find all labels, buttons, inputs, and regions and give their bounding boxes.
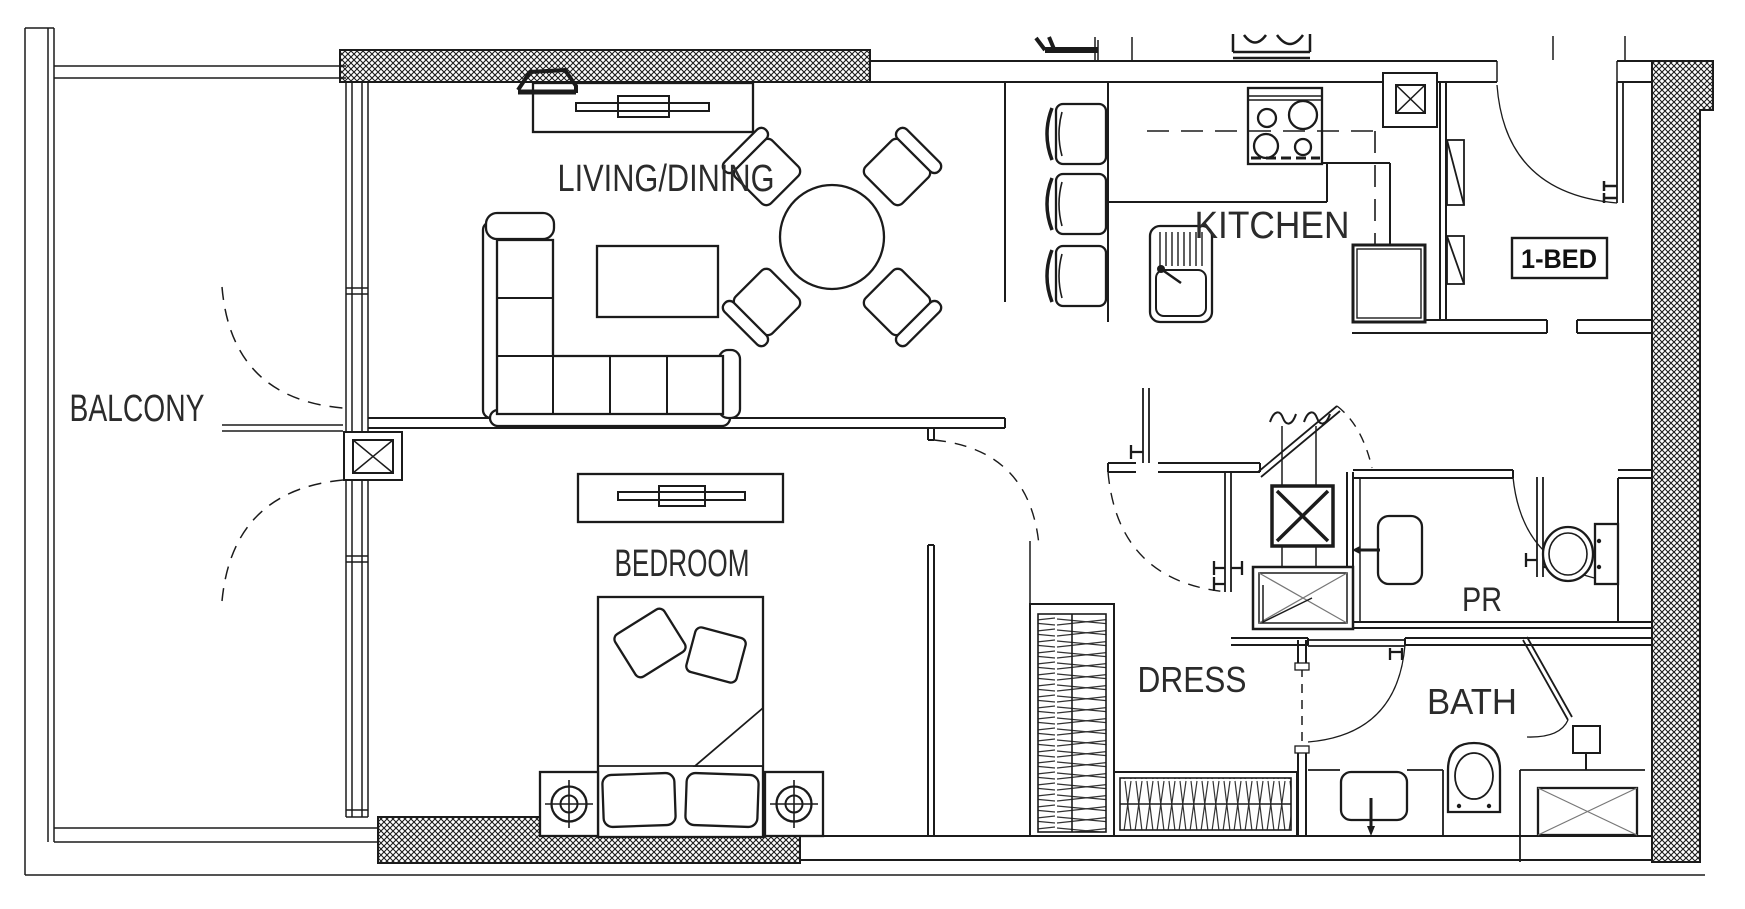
shower-screen: [1523, 637, 1572, 737]
shower: [1538, 726, 1637, 835]
shower-head-icon: [1573, 726, 1600, 753]
dresser-tv-bedroom: [578, 474, 783, 522]
bar-stools: [1047, 104, 1106, 306]
cooktop-4-burner: [1248, 88, 1322, 164]
dining-chair: [720, 264, 805, 349]
room-label-bedroom: BEDROOM: [615, 543, 750, 585]
bar-stool: [1047, 104, 1106, 164]
wall-pr-top: [1353, 470, 1652, 478]
wall-right-hatched: [1652, 61, 1713, 862]
wall-pr-bottom: [1347, 622, 1652, 628]
cooktop-fragment-icon: [1233, 34, 1310, 58]
washing-machine: [1253, 567, 1353, 629]
room-label-living-dining: LIVING/DINING: [558, 158, 775, 200]
wall-bath-top: [1231, 638, 1652, 645]
wall-corridor-top: [1108, 463, 1260, 472]
balcony-divider-line: [222, 425, 343, 431]
balcony-railing: [25, 28, 378, 875]
bath-door: [1308, 640, 1405, 742]
faucet-fragment-icon: [1036, 37, 1098, 60]
bath-vanity: [1308, 770, 1443, 836]
unit-tag-box: 1-BED: [1512, 238, 1607, 278]
floor-plan-canvas: 1-BED: [0, 0, 1745, 909]
bed-pillow: [602, 773, 676, 827]
wardrobe-low: [1114, 772, 1297, 836]
column-shaft-entry-icon: [1383, 73, 1437, 127]
nightstand: [765, 772, 823, 836]
nightstand: [540, 772, 598, 836]
room-label-balcony: BALCONY: [70, 388, 205, 430]
wardrobe-tall: [1030, 604, 1114, 836]
room-label-bath: BATH: [1427, 681, 1517, 722]
room-label-dress: DRESS: [1138, 659, 1247, 700]
wall-top-hatched: [340, 50, 870, 82]
dining-chair: [859, 264, 944, 349]
room-label-kitchen: KITCHEN: [1195, 205, 1350, 247]
entry-door: [1497, 82, 1623, 203]
closet-panels-entry: [1447, 140, 1464, 284]
floor-plan-page: 1-BED: [0, 0, 1745, 909]
duct-shaft-x: [1272, 486, 1333, 546]
dining-chair: [859, 125, 944, 210]
vent-squiggle-icon: [1270, 412, 1296, 423]
double-bed: [598, 597, 763, 837]
coffee-table: [597, 246, 718, 317]
corridor-door: [1108, 388, 1242, 592]
bar-stool: [1047, 246, 1106, 306]
bar-stool: [1047, 174, 1106, 234]
round-dining-table: [780, 185, 884, 289]
unit-tag-label: 1-BED: [1521, 244, 1597, 274]
column-shaft-window-icon: [344, 432, 402, 480]
bedroom-door: [934, 440, 1039, 545]
pr-toilet: [1543, 524, 1618, 584]
bath-toilet: [1448, 743, 1500, 812]
pr-vanity: [1352, 516, 1422, 584]
wall-bedroom-right: [928, 428, 934, 836]
wall-entry-closet: [1440, 82, 1446, 320]
balcony-french-doors: [222, 287, 343, 601]
room-label-pr: PR: [1462, 581, 1502, 619]
bed-pillow: [685, 773, 759, 827]
laundry-door: [1258, 406, 1372, 477]
refrigerator: [1353, 245, 1425, 322]
